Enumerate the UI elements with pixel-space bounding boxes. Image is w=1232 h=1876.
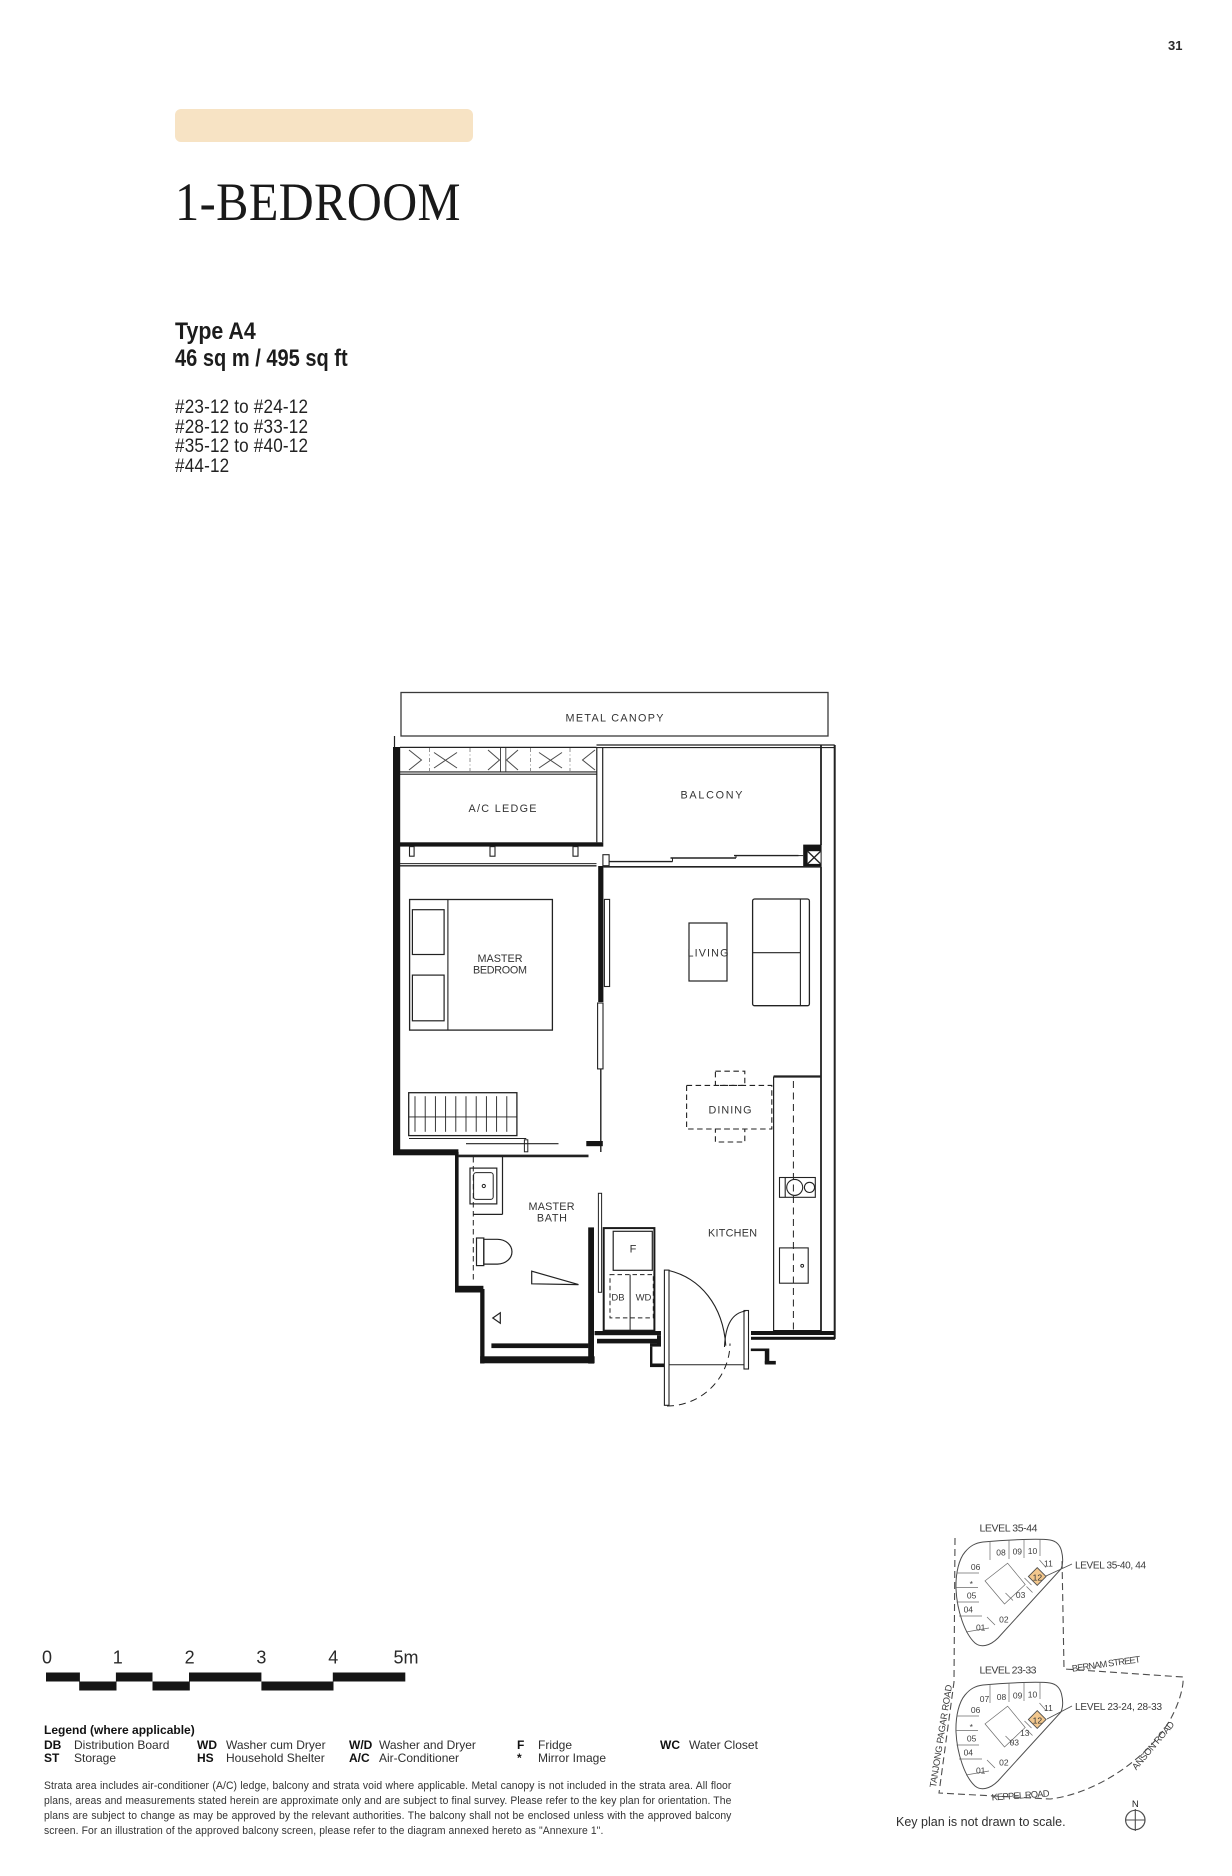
svg-text:5m: 5m <box>393 1648 418 1668</box>
svg-text:0: 0 <box>42 1648 52 1668</box>
svg-text:12: 12 <box>1033 1573 1043 1583</box>
svg-text:WD: WD <box>636 1292 652 1303</box>
svg-text:LEVEL 23-33: LEVEL 23-33 <box>980 1665 1037 1677</box>
svg-text:MASTER: MASTER <box>529 1201 575 1213</box>
svg-text:02: 02 <box>999 1757 1009 1767</box>
svg-text:10: 10 <box>1028 1546 1038 1556</box>
svg-text:11: 11 <box>1044 1703 1053 1713</box>
svg-text:09: 09 <box>1013 1547 1023 1557</box>
svg-text:11: 11 <box>1044 1559 1053 1569</box>
svg-text:06: 06 <box>971 1705 981 1715</box>
svg-text:01: 01 <box>976 1623 986 1633</box>
svg-text:09: 09 <box>1013 1691 1023 1701</box>
svg-text:02: 02 <box>999 1614 1009 1624</box>
svg-text:BATH: BATH <box>537 1212 567 1224</box>
svg-text:08: 08 <box>996 1548 1006 1558</box>
svg-text:05: 05 <box>967 1590 977 1600</box>
svg-text:08: 08 <box>997 1692 1007 1702</box>
svg-text:12: 12 <box>1033 1716 1043 1726</box>
svg-text:05: 05 <box>967 1733 977 1743</box>
svg-text:BALCONY: BALCONY <box>681 790 743 802</box>
svg-text:LIVING: LIVING <box>688 948 729 960</box>
svg-text:LEVEL 35-44: LEVEL 35-44 <box>980 1523 1038 1535</box>
svg-text:TANJONG PAGAR ROAD: TANJONG PAGAR ROAD <box>928 1684 954 1789</box>
svg-text:METAL CANOPY: METAL CANOPY <box>566 713 664 725</box>
svg-text:2: 2 <box>185 1648 195 1668</box>
svg-text:A/C LEDGE: A/C LEDGE <box>469 803 537 815</box>
svg-text:4: 4 <box>328 1648 338 1668</box>
svg-text:DINING: DINING <box>709 1105 752 1117</box>
svg-text:03: 03 <box>1010 1738 1020 1748</box>
svg-text:BERNAM STREET: BERNAM STREET <box>1071 1654 1141 1674</box>
svg-text:N: N <box>1132 1799 1139 1810</box>
svg-text:04: 04 <box>964 1748 974 1758</box>
svg-text:3: 3 <box>256 1648 266 1668</box>
svg-text:07: 07 <box>980 1694 990 1704</box>
svg-text:LEVEL 35-40, 44: LEVEL 35-40, 44 <box>1075 1561 1146 1572</box>
svg-text:F: F <box>630 1244 637 1256</box>
svg-text:LEVEL 23-24, 28-33: LEVEL 23-24, 28-33 <box>1075 1702 1162 1713</box>
svg-text:KITCHEN: KITCHEN <box>708 1228 757 1240</box>
svg-text:03: 03 <box>1016 1590 1026 1600</box>
svg-text:10: 10 <box>1028 1690 1038 1700</box>
svg-text:MASTER: MASTER <box>478 953 523 965</box>
svg-text:01: 01 <box>976 1766 986 1776</box>
svg-text:DB: DB <box>611 1292 624 1303</box>
svg-text:06: 06 <box>971 1562 981 1572</box>
svg-text:ANSON ROAD: ANSON ROAD <box>1130 1719 1176 1772</box>
svg-text:KEPPEL ROAD: KEPPEL ROAD <box>991 1788 1050 1802</box>
svg-text:04: 04 <box>964 1605 974 1615</box>
svg-text:13: 13 <box>1020 1728 1030 1738</box>
svg-text:BEDROOM: BEDROOM <box>473 965 527 977</box>
svg-text:1: 1 <box>113 1648 123 1668</box>
